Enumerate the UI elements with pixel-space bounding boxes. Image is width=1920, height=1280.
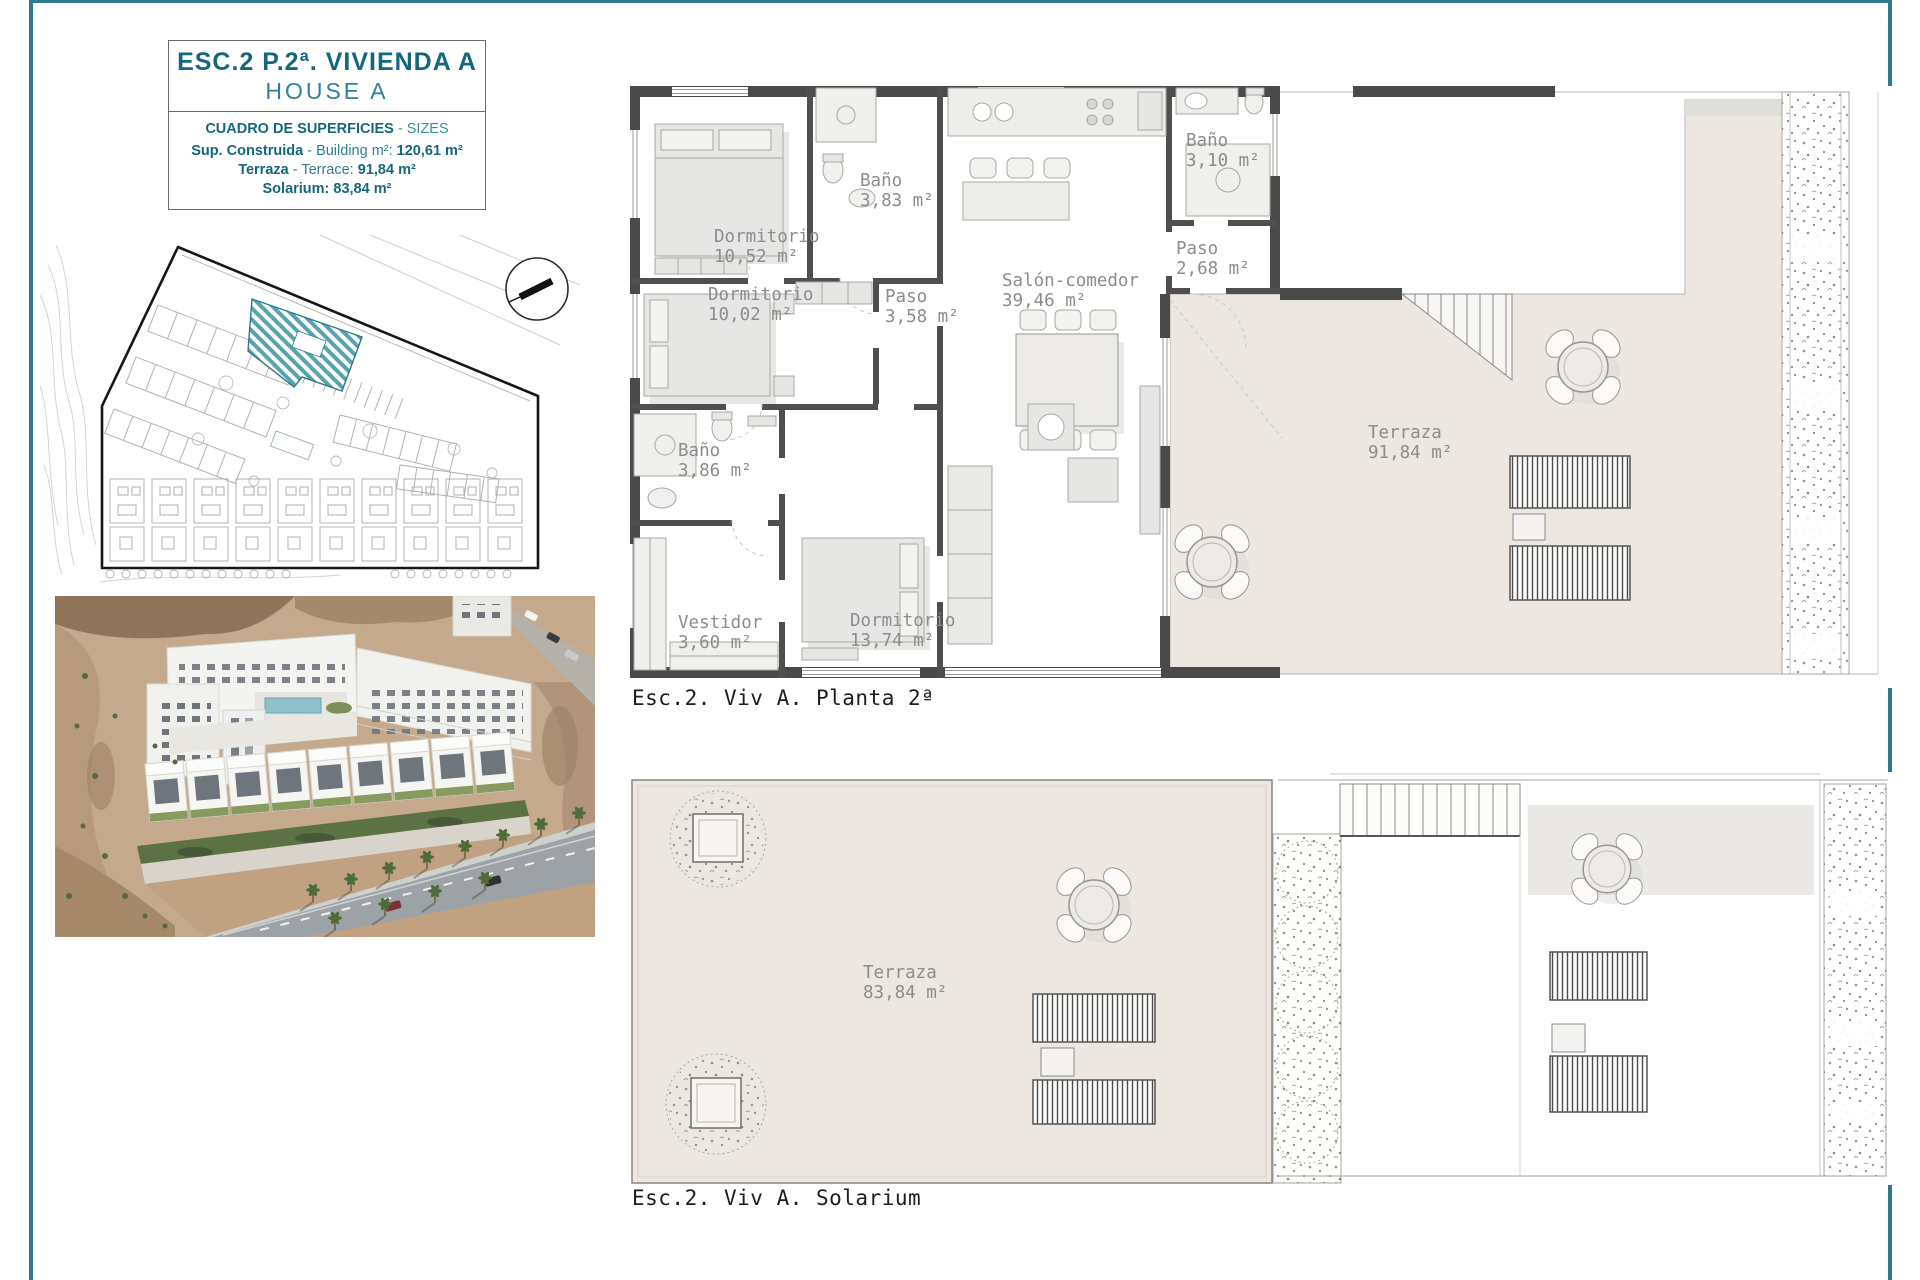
row-label: Solarium: xyxy=(263,181,330,197)
highlighted-unit xyxy=(248,299,362,391)
surface-row-solarium: Solarium: 83,84 m² xyxy=(173,180,481,199)
title-block-header: ESC.2 P.2ª. VIVIENDA A HOUSE A xyxy=(169,41,485,112)
surface-row-terrace: Terraza - Terrace: 91,84 m² xyxy=(173,161,481,180)
room-area: 3,60 m² xyxy=(678,633,752,653)
room-area: 3,86 m² xyxy=(678,461,752,481)
room-label: Vestidor xyxy=(678,613,762,633)
site-plan xyxy=(40,235,580,590)
room-label: Paso xyxy=(885,287,927,307)
neighbor-roof-patch xyxy=(1528,805,1814,895)
page-border-top xyxy=(29,0,1888,3)
tree-symbols xyxy=(192,376,497,486)
sheet-subtitle: HOUSE A xyxy=(265,77,388,105)
solarium-planter-strip xyxy=(1824,784,1886,1176)
room-area: 91,84 m² xyxy=(1368,443,1452,463)
row-label: Terraza xyxy=(238,162,289,178)
inner-boundary-line xyxy=(182,255,530,401)
surface-table-heading: CUADRO DE SUPERFICIES - SIZES xyxy=(173,121,481,137)
plan2-caption: Esc.2. Viv A. Solarium xyxy=(632,1186,921,1210)
sheet-title: ESC.2 P.2ª. VIVIENDA A xyxy=(177,47,477,77)
room-label: Terraza xyxy=(863,963,937,983)
surface-table: CUADRO DE SUPERFICIES - SIZES Sup. Const… xyxy=(169,112,485,199)
room-label: Baño xyxy=(1186,131,1228,151)
room-area: 3,83 m² xyxy=(860,191,934,211)
solarium-stairs xyxy=(1340,784,1520,836)
room-label: Salón-comedor xyxy=(1002,271,1139,291)
row-value: 120,61 m² xyxy=(397,143,463,159)
plan1-caption: Esc.2. Viv A. Planta 2ª xyxy=(632,686,934,710)
room-label: Terraza xyxy=(1368,423,1442,443)
room-area: 10,52 m² xyxy=(714,247,798,267)
terrace-planter-strip xyxy=(1782,92,1849,674)
room-label: Paso xyxy=(1176,239,1218,259)
townhouse-row-lower xyxy=(110,527,522,561)
room-area: 3,10 m² xyxy=(1186,151,1260,171)
compass-icon xyxy=(506,258,568,320)
floor-plan-planta2: Dormitorio 10,52 m² Baño 3,83 m² Dormito… xyxy=(630,86,1895,688)
hedge-strip xyxy=(1273,834,1341,1183)
room-area: 39,46 m² xyxy=(1002,291,1086,311)
heading-main: CUADRO DE SUPERFICIES xyxy=(205,121,394,137)
surface-row-built: Sup. Construida - Building m²: 120,61 m² xyxy=(173,142,481,161)
plan-sheet: ESC.2 P.2ª. VIVIENDA A HOUSE A CUADRO DE… xyxy=(0,0,1920,1280)
neighbor-building xyxy=(453,596,511,636)
row-mid: - Terrace: xyxy=(293,162,354,178)
room-label: Dormitorio xyxy=(850,611,955,631)
room-area: 10,02 m² xyxy=(708,305,792,325)
room-label: Baño xyxy=(860,171,902,191)
aerial-render xyxy=(55,596,595,937)
solarium-labels: Terraza 83,84 m² xyxy=(863,963,947,1003)
heading-suffix: - SIZES xyxy=(398,121,449,137)
page-border-left xyxy=(29,0,33,1280)
room-label: Dormitorio xyxy=(708,285,813,305)
room-area: 3,58 m² xyxy=(885,307,959,327)
row-mid: - Building m²: xyxy=(307,143,392,159)
row-label: Sup. Construida xyxy=(191,143,303,159)
floor-plan-solarium: Terraza 83,84 m² xyxy=(630,772,1895,1185)
townhouse-row-upper xyxy=(110,479,522,523)
room-label: Baño xyxy=(678,441,720,461)
title-block: ESC.2 P.2ª. VIVIENDA A HOUSE A CUADRO DE… xyxy=(168,40,486,210)
room-area: 83,84 m² xyxy=(863,983,947,1003)
room-label: Dormitorio xyxy=(714,227,819,247)
room-area: 2,68 m² xyxy=(1176,259,1250,279)
row-value: 91,84 m² xyxy=(358,162,416,178)
row-value: 83,84 m² xyxy=(333,181,391,197)
room-area: 13,74 m² xyxy=(850,631,934,651)
